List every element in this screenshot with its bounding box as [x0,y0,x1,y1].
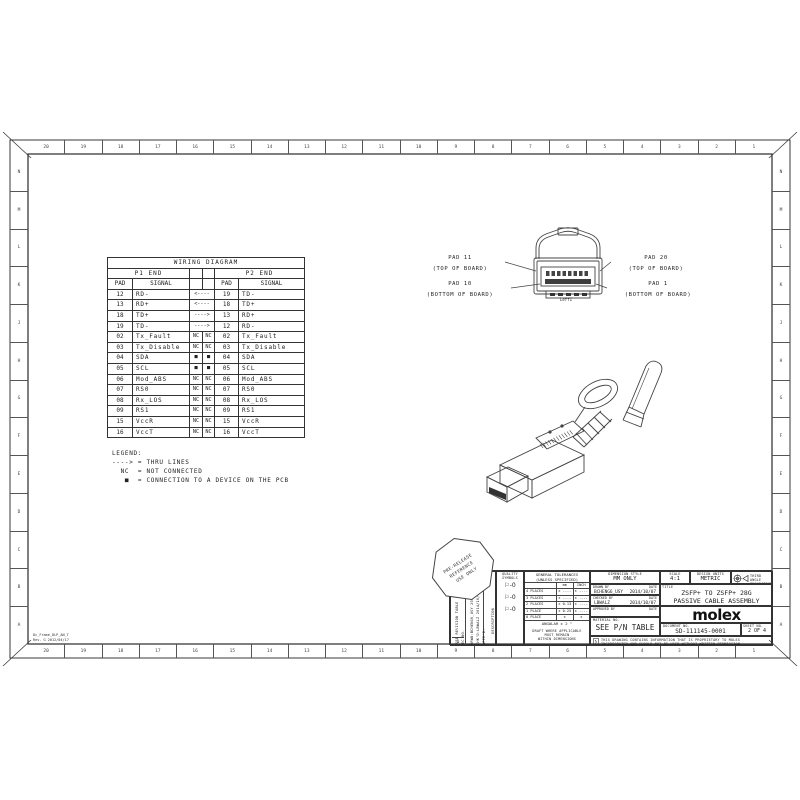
signal-column-header: SIGNAL [133,279,190,290]
p1-pad-cell: 04 [108,353,133,364]
date-label: DATE [649,607,657,612]
pad-callout-top-left: PAD 11 (TOP OF BOARD) [416,253,504,275]
pad-column-header: PAD [215,279,239,290]
p1-signal-cell: Mod_ABS [133,374,190,385]
thru-line-cell: ----> [190,321,215,332]
wiring-end-header-row: P1 END P2 END [108,268,305,279]
wiring-column-header-row: PAD SIGNAL PAD SIGNAL [108,279,305,290]
p1-signal-cell: TD+ [133,310,190,321]
p1-signal-cell: Rx_LOS [133,395,190,406]
border-bottom-zones: 2019181716151413121110987654321 [28,644,772,658]
p1-signal-cell: SCL [133,363,190,374]
connection-cell: NC [203,332,215,343]
drawn-by-cell: DRAWN BY DATE BCHENG6_USY 2014/10/07 [590,584,660,595]
zone-label: F [772,418,790,456]
p2-pad-cell: 06 [215,374,239,385]
p1-pad-cell: 19 [108,321,133,332]
pad-callout-bottom-right: PAD 1 (BOTTOM OF BOARD) [608,279,708,301]
revision-number: 1 [452,637,464,646]
p1-end-header: P1 END [108,268,190,279]
connection-cell: NC [190,385,203,396]
zone-label: N [10,154,28,192]
zone-label: J [772,305,790,343]
tolerance-value: 3 PLACES [525,596,556,601]
p1-signal-cell: RD+ [133,300,190,311]
p1-signal-cell: RS0 [133,385,190,396]
p2-pad-cell: 08 [215,395,239,406]
wiring-row: 13RD+<----18TD+ [108,300,305,311]
wiring-row: 08Rx_LOSNCNC08Rx_LOS [108,395,305,406]
zone-label: 10 [401,644,438,658]
p1-signal-cell: TD- [133,321,190,332]
p1-signal-cell: RS1 [133,406,190,417]
inch-column-header: INCH [573,583,589,588]
p1-signal-cell: RD- [133,289,190,300]
projection-cell: THIRD ANGLE PROJECTION [731,571,773,584]
p2-signal-cell: TD- [239,289,305,300]
approved-rev-note: APPR'D: [482,628,486,645]
spacer-cell [203,268,215,279]
p1-signal-cell: Tx_Fault [133,332,190,343]
p2-pad-cell: 18 [215,300,239,311]
pad-callout-line: (BOTTOM OF BOARD) [608,290,708,301]
zone-label: 19 [65,140,102,154]
p2-pad-cell: 13 [215,310,239,321]
tolerance-value: ± 0.13 [556,602,572,607]
zone-label: G [10,381,28,419]
tolerance-row: 4 PLACES± ----± ---- [525,588,589,594]
zone-label: B [10,569,28,607]
connection-cell: NC [203,395,215,406]
wiring-row: 19TD----->12RD- [108,321,305,332]
drawing-title-line: PASSIVE CABLE ASSEMBLY [661,597,772,605]
tolerance-value: ± ---- [573,602,589,607]
connection-cell: NC [190,374,203,385]
pad-column-header: PAD [108,279,133,290]
checked-by-cell: CHECKED BY DATE LBWALZ 2014/10/07 [590,595,660,606]
p2-signal-cell: SDA [239,353,305,364]
zone-label: 9 [438,140,475,154]
tolerance-value: ± ---- [573,609,589,614]
drawing-title-line: ZSFP+ TO ZSFP+ 28G [661,589,772,597]
p2-signal-cell: Tx_Disable [239,342,305,353]
tolerance-row: 0 PLACE±± [525,614,589,620]
pad-callout-line: PAD 10 [410,279,510,290]
zone-label: K [10,267,28,305]
document-no-cell: DOCUMENT NO. SD-111145-0001 [660,623,741,636]
quality-flag-symbol: ⚐-0 [497,592,523,604]
wiring-row: 04SDA■■04SDA [108,353,305,364]
wiring-row: 06Mod_ABSNCNC06Mod_ABS [108,374,305,385]
dimension-style-cell: DIMENSION STYLE MM ONLY [590,571,660,584]
pad-callout-line: (TOP OF BOARD) [416,264,504,275]
dimension-style-value: MM ONLY [591,576,659,582]
title-label: TITLE [662,585,673,589]
zone-label: 19 [65,644,102,658]
quality-flags: ⚐-0⚐-0⚐-0 [497,580,523,616]
border-left-zones: NMLKJHGFEDCBA [10,154,28,644]
spacer-cell [190,268,203,279]
zone-label: 17 [140,140,177,154]
p2-pad-cell: 15 [215,416,239,427]
pad-callout-line: (TOP OF BOARD) [612,264,700,275]
p2-pad-cell: 03 [215,342,239,353]
wiring-row: 09RS1NCNC09RS1 [108,406,305,417]
zone-label: 6 [550,140,587,154]
sheet-no-cell: SHEET NO. 2 OF 4 [741,623,773,636]
zone-label: 6 [550,644,587,658]
wiring-row: 05SCL■■05SCL [108,363,305,374]
p1-pad-cell: 05 [108,363,133,374]
tolerance-value: 2 PLACES [525,602,556,607]
scale-cell: SCALE 4:1 [660,571,690,584]
connection-cell: NC [203,406,215,417]
zone-label: 15 [214,644,251,658]
title-cell: TITLE ZSFP+ TO ZSFP+ 28G PASSIVE CABLE A… [660,584,773,606]
connection-cell: NC [190,427,203,438]
zone-label: 4 [624,140,661,154]
logo-cell: molex [660,606,773,623]
p2-pad-cell: 05 [215,363,239,374]
material-no-cell: MATERIAL NO. SEE P/N TABLE [590,617,660,636]
zone-label: G [772,381,790,419]
p1-pad-cell: 02 [108,332,133,343]
p2-signal-cell: RS0 [239,385,305,396]
disclaimer-cell: THIS DRAWING CONTAINS INFORMATION THAT I… [590,636,773,646]
scale-value: 4:1 [661,576,689,582]
zone-label: 10 [401,140,438,154]
proprietary-icon [593,638,599,646]
projection-label: THIRD ANGLE [750,574,772,582]
zone-label: C [10,532,28,570]
zone-label: A [10,607,28,644]
wiring-row: 16VccTNCNC16VccT [108,427,305,438]
zone-label: M [772,192,790,230]
zone-label: H [772,343,790,381]
p2-signal-cell: RD+ [239,310,305,321]
document-no-value: SD-111145-0001 [661,628,740,635]
zone-label: E [772,456,790,494]
zone-label: 12 [326,644,363,658]
connection-cell: NC [203,427,215,438]
zone-label: H [10,343,28,381]
connection-cell: NC [190,342,203,353]
p1-pad-cell: 03 [108,342,133,353]
p2-pad-cell: 04 [215,353,239,364]
zone-label: 16 [177,140,214,154]
material-no-value: SEE P/N TABLE [591,622,659,634]
angular-tolerance: ANGULAR ± 2 ° [525,620,589,627]
zone-label: 1 [736,140,772,154]
cable-isometric-view [487,361,662,502]
third-angle-projection-icon [733,574,749,583]
approved-by-cell: APPROVED BY DATE [590,606,660,617]
tolerance-value: ± [573,615,589,620]
zone-label: 16 [177,644,214,658]
zone-label: 5 [587,140,624,154]
zone-label: F [10,418,28,456]
tolerance-value: ± 0.25 [556,609,572,614]
border-top-zones: 2019181716151413121110987654321 [28,140,772,154]
p2-signal-cell: Rx_LOS [239,395,305,406]
zone-label: D [10,494,28,532]
p1-pad-cell: 16 [108,427,133,438]
zone-label: 13 [289,140,326,154]
zone-label: 2 [699,140,736,154]
connection-cell: NC [190,395,203,406]
spacer [525,583,556,588]
spacer-cell [203,279,215,290]
connection-cell: ■ [190,363,203,374]
connection-cell: ■ [190,353,203,364]
wiring-title-row: WIRING DIAGRAM [108,258,305,269]
tolerance-value: ± ---- [573,596,589,601]
zone-label: 7 [512,644,549,658]
p2-signal-cell: TD+ [239,300,305,311]
zone-label: 1 [736,644,772,658]
approved-by-label: APPROVED BY [593,607,615,612]
p2-signal-cell: Mod_ABS [239,374,305,385]
p1-signal-cell: Tx_Disable [133,342,190,353]
p1-signal-cell: VccR [133,416,190,427]
tolerance-value: ± ---- [556,589,572,594]
zone-label: B [772,569,790,607]
p2-pad-cell: 16 [215,427,239,438]
p2-signal-cell: RS1 [239,406,305,417]
zone-label: 8 [475,140,512,154]
pad-callout-line: PAD 1 [608,279,708,290]
zone-label: D [772,494,790,532]
spacer-cell [190,279,203,290]
p2-signal-cell: VccR [239,416,305,427]
wiring-row: 02Tx_FaultNCNC02Tx_Fault [108,332,305,343]
tolerance-value: ± ---- [556,596,572,601]
p1-pad-cell: 07 [108,385,133,396]
zone-label: N [772,154,790,192]
thru-line-cell: <---- [190,300,215,311]
tolerance-value: 1 PLACE [525,609,556,614]
zone-label: L [772,230,790,268]
mm-column-header: mm [556,583,572,588]
signal-column-header: SIGNAL [239,279,305,290]
zone-label: 3 [661,140,698,154]
connection-cell: NC [203,385,215,396]
tolerance-rows: 4 PLACES± ----± ----3 PLACES± ----± ----… [525,588,589,620]
design-units-cell: DESIGN UNITS METRIC [690,571,731,584]
p2-signal-cell: RD- [239,321,305,332]
thru-line-cell: ----> [190,310,215,321]
zone-label: A [772,607,790,644]
pad-callout-line: (BOTTOM OF BOARD) [410,290,510,301]
p2-end-header: P2 END [215,268,305,279]
wiring-table-title: WIRING DIAGRAM [108,258,305,269]
connection-cell: NC [203,374,215,385]
p2-signal-cell: SCL [239,363,305,374]
pad-callout-bottom-left: PAD 10 (BOTTOM OF BOARD) [410,279,510,301]
description-label: DESCRIPTION [491,608,495,634]
frame-format-note: Dc_Frame_DLP_AN_T Rev. G 2012/04/17 [33,633,69,642]
zone-label: 8 [475,644,512,658]
p2-pad-cell: 02 [215,332,239,343]
zone-label: 9 [438,644,475,658]
wiring-row: 18TD+---->13RD+ [108,310,305,321]
molex-logo: molex [661,607,772,623]
p2-pad-cell: 09 [215,406,239,417]
zone-label: 14 [252,140,289,154]
pre-release-stamp: PRE-RELEASE REFERENCE USE ONLY [428,534,500,604]
zone-label: 7 [512,140,549,154]
quality-symbols-cell: QUALITY SYMBOLS ⚐-0⚐-0⚐-0 [496,571,524,646]
quality-flag-symbol: ⚐-0 [497,604,523,616]
zone-label: 3 [661,644,698,658]
zone-label: 20 [28,644,65,658]
zone-label: E [10,456,28,494]
wiring-row: 07RS0NCNC07RS0 [108,385,305,396]
p1-pad-cell: 12 [108,289,133,300]
frame-note-line: Dc_Frame_DLP_AN_T [33,633,69,638]
tolerance-row: 1 PLACE± 0.25± ---- [525,608,589,614]
zone-label: 20 [28,140,65,154]
connection-cell: NC [203,416,215,427]
drawing-sheet: 2019181716151413121110987654321 20191817… [0,0,800,800]
pad-row [546,271,588,276]
frame-note-line: Rev. G 2012/04/17 [33,638,69,643]
connection-cell: ■ [203,353,215,364]
pad-callout-line: PAD 11 [416,253,504,264]
tolerance-value: 0 PLACE [525,615,556,620]
zone-label: L [10,230,28,268]
tolerance-row: 3 PLACES± ----± ---- [525,595,589,601]
p1-pad-cell: 08 [108,395,133,406]
p1-pad-cell: 13 [108,300,133,311]
disclaimer-line: INCORPORATED AND SHOULD NOT BE USED WITH… [601,642,772,646]
thru-line-cell: <---- [190,289,215,300]
connection-cell: NC [190,416,203,427]
p2-signal-cell: VccT [239,427,305,438]
zone-label: 18 [103,140,140,154]
zone-label: 2 [699,644,736,658]
p2-pad-cell: 19 [215,289,239,300]
p1-pad-cell: 18 [108,310,133,321]
connection-cell: ■ [203,363,215,374]
wiring-row: 12RD-<----19TD- [108,289,305,300]
zone-label: 17 [140,644,177,658]
tolerance-row: 2 PLACES± 0.13± ---- [525,601,589,607]
p1-signal-cell: SDA [133,353,190,364]
p1-pad-cell: 09 [108,406,133,417]
front-view-label: Leff1 [540,297,592,302]
zone-label: 14 [252,644,289,658]
pad-callout-top-right: PAD 20 (TOP OF BOARD) [612,253,700,275]
tolerances-cell: GENERAL TOLERANCES (UNLESS SPECIFIED) mm… [524,571,590,646]
zone-label: 12 [326,140,363,154]
wiring-diagram-table: WIRING DIAGRAM P1 END P2 END PAD SIGNAL … [107,257,305,438]
zone-label: 5 [587,644,624,658]
design-units-value: METRIC [691,576,730,582]
wiring-table-body: 12RD-<----19TD-13RD+<----18TD+18TD+---->… [108,289,305,437]
tolerance-value: 4 PLACES [525,589,556,594]
zone-label: K [772,267,790,305]
tolerance-column-headers: mm INCH [525,582,589,588]
sheet-no-value: 2 OF 4 [742,628,772,634]
zone-label: J [10,305,28,343]
zone-label: C [772,532,790,570]
zone-label: 13 [289,644,326,658]
p2-pad-cell: 12 [215,321,239,332]
connection-cell: NC [203,342,215,353]
border-right-zones: NMLKJHGFEDCBA [772,154,790,644]
zone-label: 11 [363,644,400,658]
zone-label: 15 [214,140,251,154]
p2-signal-cell: Tx_Fault [239,332,305,343]
connection-cell: NC [190,332,203,343]
connector-front-view [505,228,611,298]
connection-cell: NC [190,406,203,417]
quality-flag-symbol: ⚐-0 [497,580,523,592]
p1-pad-cell: 15 [108,416,133,427]
zone-label: 18 [103,644,140,658]
p2-pad-cell: 07 [215,385,239,396]
p1-signal-cell: VccT [133,427,190,438]
p1-pad-cell: 06 [108,374,133,385]
draft-note: WITHIN DIMENSIONS [525,637,589,641]
zone-label: 11 [363,140,400,154]
wiring-row: 15VccRNCNC15VccR [108,416,305,427]
pad-callout-line: PAD 20 [612,253,700,264]
tolerance-value: ± [556,615,572,620]
tolerance-value: ± ---- [573,589,589,594]
wiring-row: 03Tx_DisableNCNC03Tx_Disable [108,342,305,353]
zone-label: 4 [624,644,661,658]
zone-label: M [10,192,28,230]
